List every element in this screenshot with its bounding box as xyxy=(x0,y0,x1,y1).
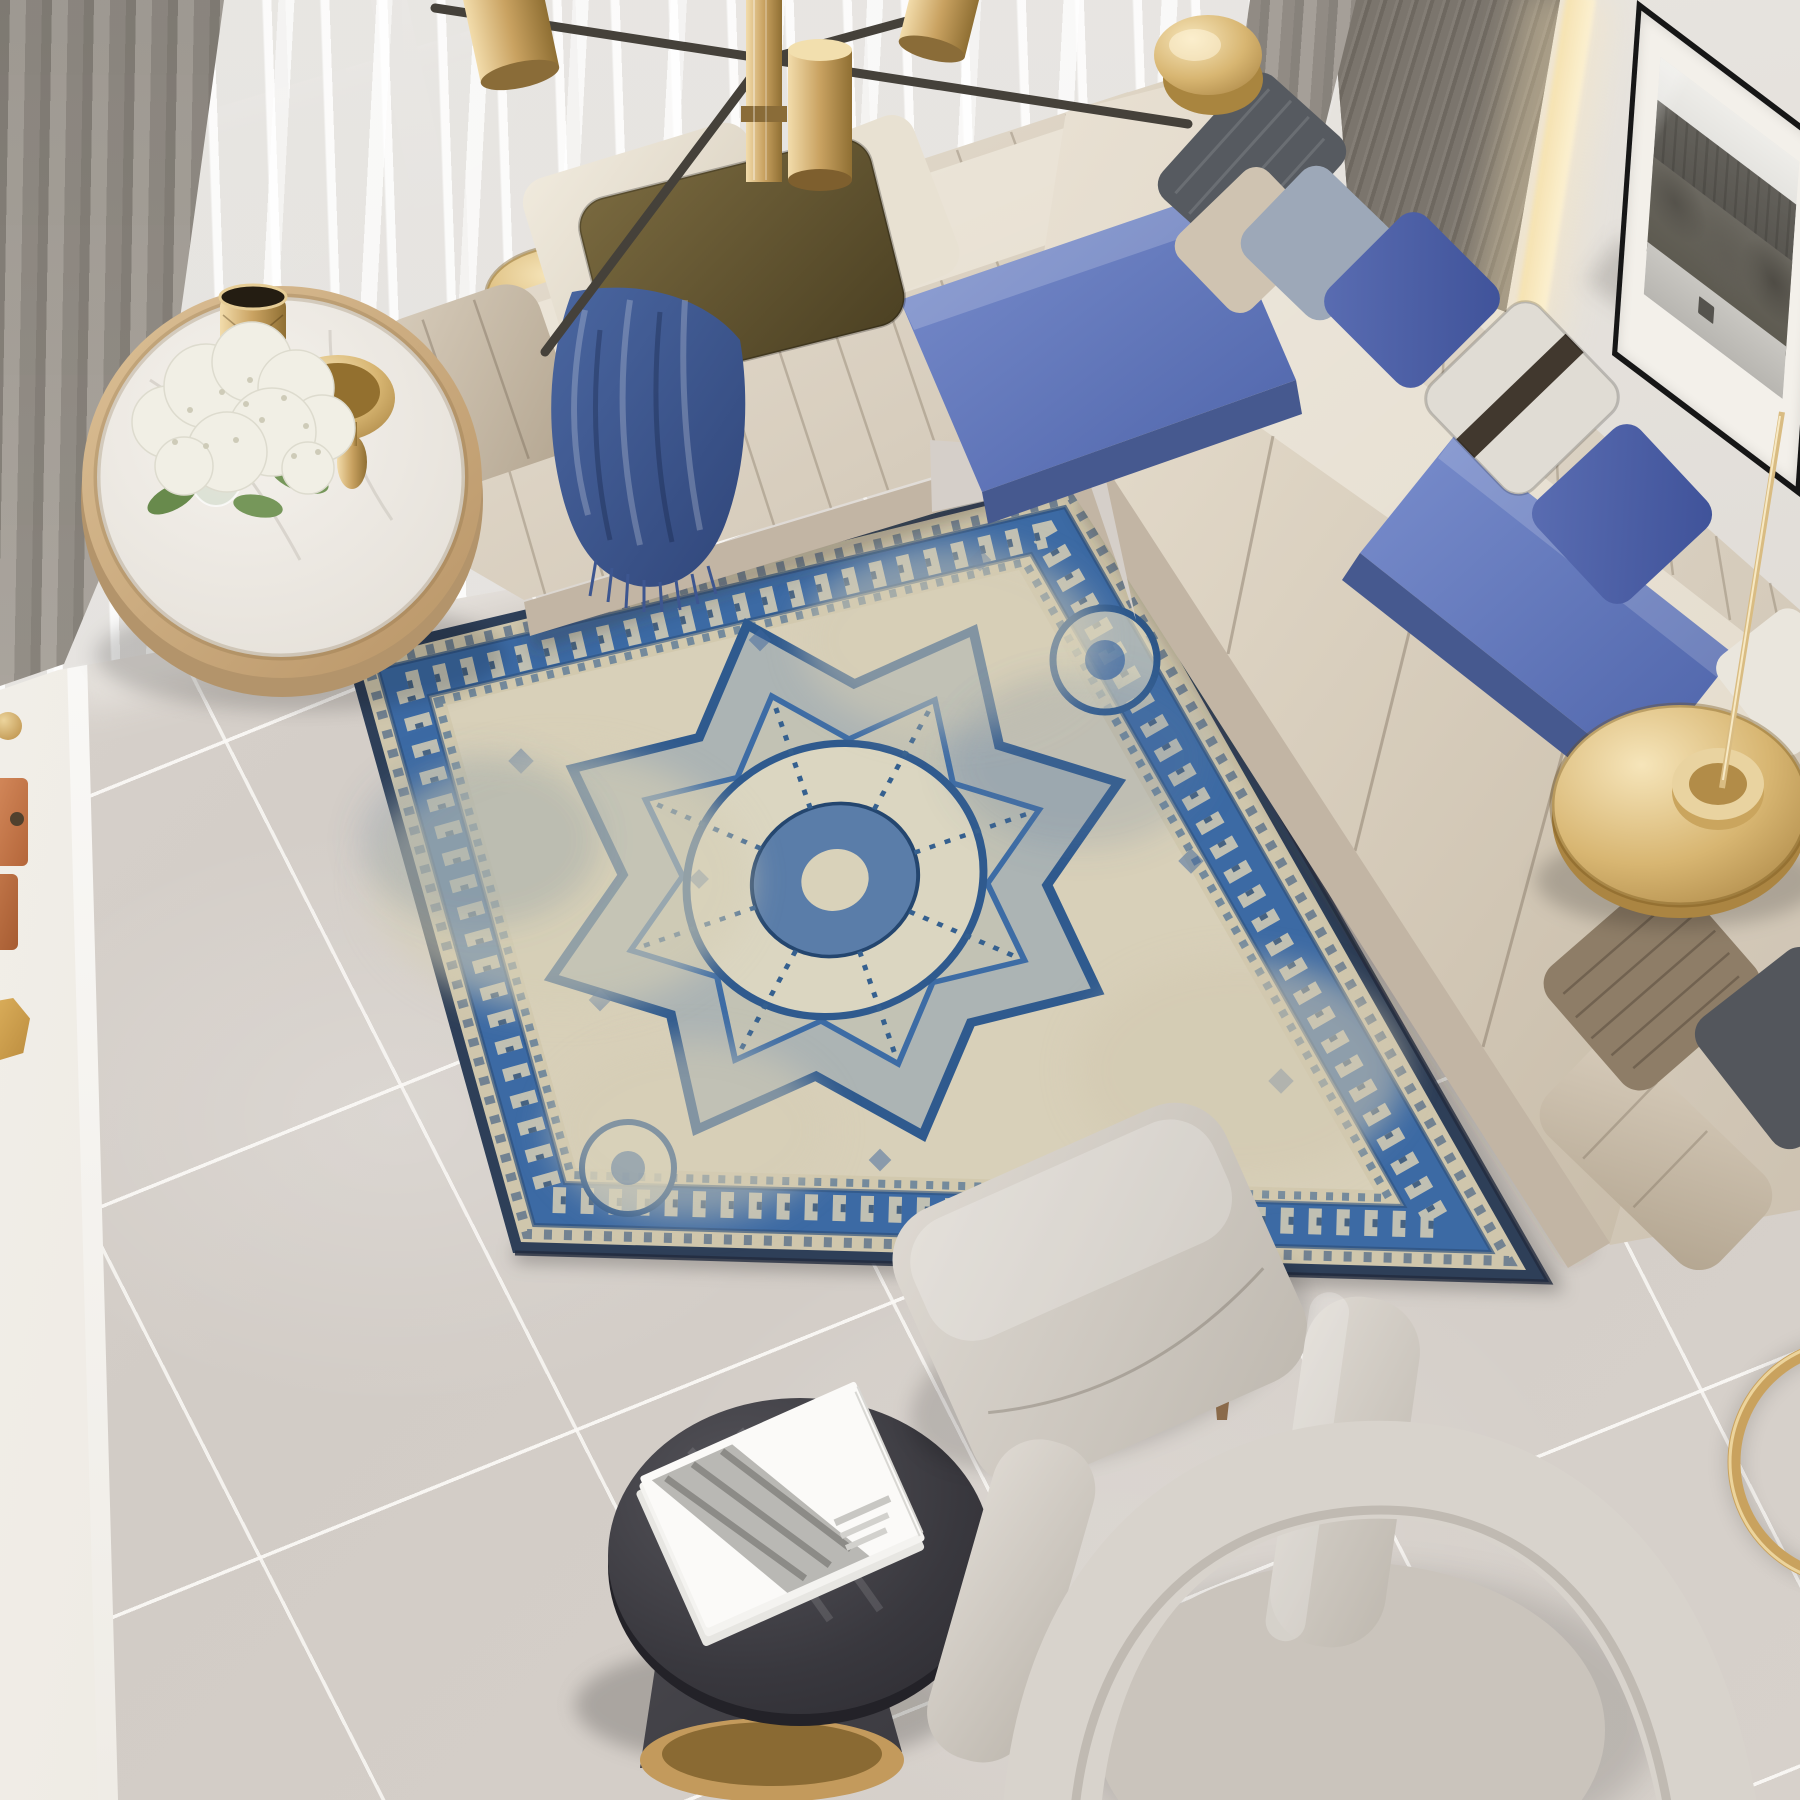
chandelier-stem xyxy=(746,0,782,182)
chandelier-shade-icon xyxy=(456,0,561,96)
living-room-photo xyxy=(0,0,1800,1800)
chandelier-shade-icon xyxy=(788,39,852,191)
gold-floor-ring xyxy=(1730,1340,1800,1584)
chandelier-shade-icon xyxy=(896,0,983,68)
scene-canvas xyxy=(0,0,1800,1800)
